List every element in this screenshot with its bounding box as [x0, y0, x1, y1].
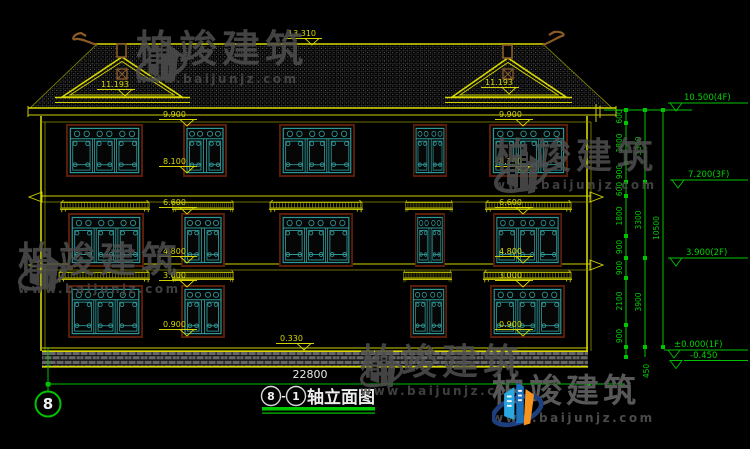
title-underline	[262, 407, 375, 411]
title-separator: -	[281, 390, 286, 403]
svg-text:6.600: 6.600	[499, 198, 522, 207]
dim-subtotal: 3900	[634, 292, 643, 311]
window	[69, 286, 142, 337]
level-label-eave-left: 9.900	[159, 110, 197, 126]
window	[67, 125, 142, 176]
svg-text:3.000: 3.000	[499, 271, 522, 280]
level-mark-4f: 10.500(4F)	[668, 93, 748, 111]
window-awning	[58, 270, 150, 282]
windows-1f	[58, 270, 572, 337]
dim-segment: 900	[615, 261, 624, 276]
plinth-brick-band	[42, 352, 588, 366]
gable-finial-icon	[117, 44, 126, 57]
svg-text:-0.450: -0.450	[690, 351, 717, 361]
title-bubble-start: 8	[267, 390, 275, 403]
dim-segment: 600	[615, 109, 624, 124]
dim-subtotal: 3300	[634, 210, 643, 229]
plinth	[42, 348, 588, 367]
window	[184, 125, 226, 176]
svg-text:11.193: 11.193	[485, 78, 513, 87]
dim-total-height: 10500	[652, 216, 661, 240]
axis-bubble-8: 8	[36, 392, 61, 417]
dim-segment: 1800	[615, 206, 624, 225]
svg-text:6.600: 6.600	[163, 198, 186, 207]
svg-text:3.000: 3.000	[163, 271, 186, 280]
band-flag-right-icon	[590, 192, 603, 202]
drawing-title: 8 - 1 轴立面图	[262, 387, 376, 414]
window-awning	[60, 200, 150, 212]
svg-text:10.500(4F): 10.500(4F)	[684, 93, 731, 103]
level-label-eave-right: 9.900	[495, 110, 533, 126]
svg-text:0.900: 0.900	[499, 320, 522, 329]
window	[280, 214, 352, 266]
window	[182, 214, 224, 266]
band-flag-right-icon	[590, 260, 603, 270]
svg-text:9.900: 9.900	[499, 110, 522, 119]
dim-segment: 600	[615, 182, 624, 197]
window-awning	[405, 200, 453, 212]
dim-segment: 450	[642, 364, 651, 379]
total-width-dim: 22800	[293, 368, 328, 381]
level-label-ridge: 13.310	[284, 29, 322, 45]
window-awning	[269, 200, 363, 212]
dim-segment: 2100	[615, 291, 624, 310]
ridge-ornament-right-icon	[543, 32, 564, 45]
windows-3f	[67, 125, 567, 176]
band-flag-left-icon	[29, 260, 42, 270]
svg-text:±0.000(1F): ±0.000(1F)	[674, 340, 722, 350]
window	[414, 125, 446, 176]
dim-subtotal: 3300	[634, 136, 643, 155]
title-bubble-end: 1	[292, 390, 300, 403]
svg-text:8: 8	[43, 395, 53, 413]
svg-text:4.800: 4.800	[163, 247, 186, 256]
window	[280, 125, 354, 176]
svg-text:8.100: 8.100	[163, 157, 186, 166]
level-mark-ground: -0.450	[670, 351, 748, 369]
svg-text:13.310: 13.310	[288, 29, 316, 38]
dim-segment: 900	[615, 329, 624, 344]
svg-text:11.193: 11.193	[101, 80, 129, 89]
level-mark-2f: 3.900(2F)	[668, 248, 748, 266]
svg-text:8.100: 8.100	[499, 157, 522, 166]
window	[411, 286, 446, 337]
elevation-drawing: 13.310 11.193 11.193 9.900 9.900	[0, 0, 750, 449]
window	[494, 214, 561, 266]
ridge-ornament-left-icon	[73, 33, 97, 45]
svg-text:0.900: 0.900	[163, 320, 186, 329]
title-text: 轴立面图	[307, 387, 375, 408]
svg-text:3.900(2F): 3.900(2F)	[686, 248, 727, 258]
band-flag-left-icon	[29, 192, 42, 202]
right-dimension-chain: 600 1800 900 600 1800 900 900 2100 900 4…	[604, 93, 748, 378]
roof	[28, 32, 616, 117]
svg-text:7.200(3F): 7.200(3F)	[688, 170, 729, 180]
svg-text:0.330: 0.330	[280, 334, 303, 343]
window	[416, 214, 445, 266]
dim-segment: 1800	[615, 133, 624, 152]
svg-text:9.900: 9.900	[163, 110, 186, 119]
level-mark-3f: 7.200(3F)	[670, 170, 748, 188]
window	[69, 214, 143, 266]
window-awning	[403, 270, 452, 282]
dim-segment: 900	[615, 165, 624, 180]
cad-elevation-canvas: 13.310 11.193 11.193 9.900 9.900	[0, 0, 750, 449]
dim-segment: 900	[615, 240, 624, 255]
gable-finial-icon	[503, 45, 512, 58]
svg-text:4.800: 4.800	[499, 247, 522, 256]
